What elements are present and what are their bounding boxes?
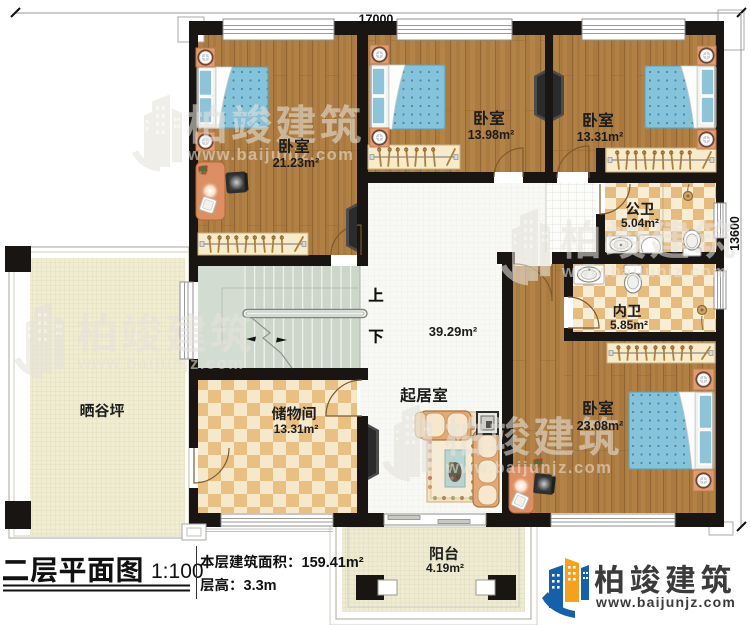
svg-text:13.98m²: 13.98m² bbox=[468, 128, 515, 142]
svg-text:13.31m²: 13.31m² bbox=[577, 130, 624, 144]
svg-text:3.3m: 3.3m bbox=[244, 578, 277, 594]
svg-text:23.08m²: 23.08m² bbox=[577, 419, 624, 433]
svg-text:1:100: 1:100 bbox=[151, 560, 204, 583]
svg-text:www.baijunjz.com: www.baijunjz.com bbox=[445, 459, 612, 477]
svg-text:4.19m²: 4.19m² bbox=[426, 561, 464, 575]
svg-text:www.baijunjz.com: www.baijunjz.com bbox=[595, 594, 736, 610]
svg-text:www.baijunjz.com: www.baijunjz.com bbox=[187, 146, 354, 164]
svg-text:5.85m²: 5.85m² bbox=[610, 318, 648, 332]
svg-text:39.29m²: 39.29m² bbox=[429, 324, 478, 339]
svg-text:www.baijunjz.com: www.baijunjz.com bbox=[561, 263, 728, 281]
svg-text:13.31m²: 13.31m² bbox=[274, 422, 319, 436]
svg-text:5.04m²: 5.04m² bbox=[621, 216, 659, 230]
svg-text:www.baijunjz.com: www.baijunjz.com bbox=[77, 355, 244, 373]
svg-text:13600: 13600 bbox=[728, 216, 742, 251]
svg-text:159.41m²: 159.41m² bbox=[302, 555, 364, 571]
svg-text:21.23m²: 21.23m² bbox=[273, 156, 320, 170]
svg-text:17000: 17000 bbox=[359, 13, 394, 27]
